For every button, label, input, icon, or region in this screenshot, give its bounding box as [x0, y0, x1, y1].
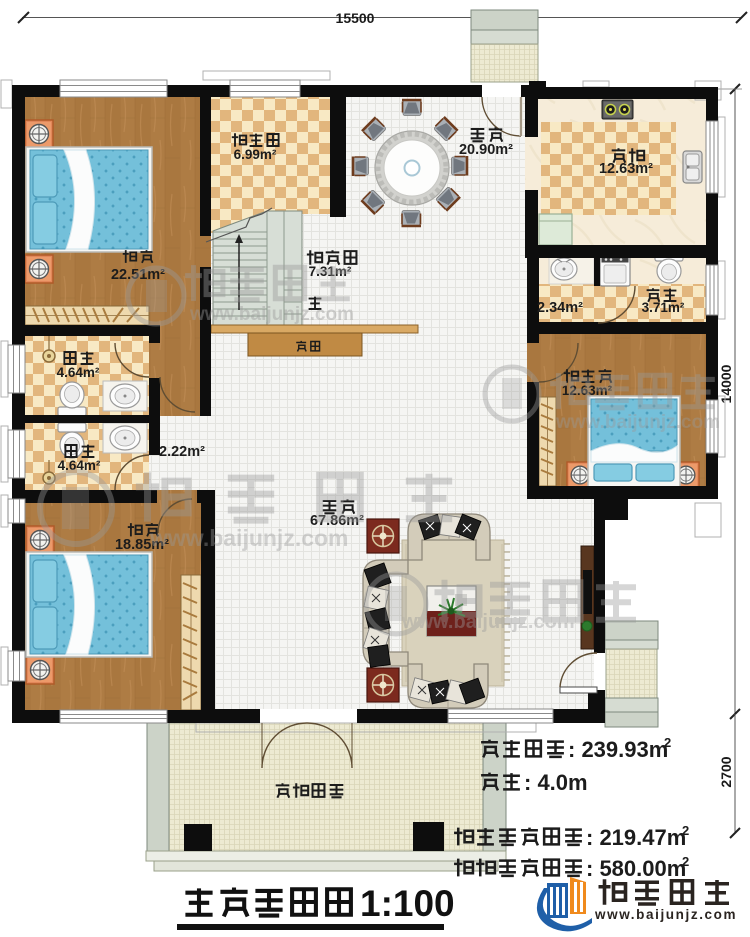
svg-text:3.71m²: 3.71m²: [642, 300, 685, 315]
svg-text:15500: 15500: [336, 10, 375, 26]
svg-text:www.baijunjz.com: www.baijunjz.com: [189, 304, 354, 325]
svg-text:www.baijunjz.com: www.baijunjz.com: [149, 525, 349, 551]
svg-text:2700: 2700: [718, 756, 734, 787]
svg-text:www.baijunjz.com: www.baijunjz.com: [555, 412, 720, 433]
svg-text:6.99m²: 6.99m²: [234, 147, 277, 162]
svg-text:12.63m²: 12.63m²: [599, 161, 653, 177]
svg-text:: 4.0m: : 4.0m: [524, 770, 588, 795]
svg-text:: 219.47m: : 219.47m: [586, 825, 686, 850]
svg-text:: 580.00m: : 580.00m: [586, 856, 686, 881]
svg-text:2: 2: [664, 735, 671, 750]
svg-text:14000: 14000: [718, 364, 734, 403]
svg-text:1:100: 1:100: [360, 883, 455, 924]
svg-text:4.64m²: 4.64m²: [57, 365, 100, 380]
svg-text:2.34m²: 2.34m²: [537, 300, 583, 316]
svg-text:www.baijunjz.com: www.baijunjz.com: [594, 907, 737, 922]
svg-text:20.90m²: 20.90m²: [459, 142, 513, 158]
svg-text:www.baijunjz.com: www.baijunjz.com: [401, 611, 575, 633]
svg-text:2.22m²: 2.22m²: [159, 444, 205, 460]
svg-text:2: 2: [682, 854, 689, 869]
svg-text:: 239.93m: : 239.93m: [568, 737, 668, 762]
svg-text:2: 2: [682, 823, 689, 838]
